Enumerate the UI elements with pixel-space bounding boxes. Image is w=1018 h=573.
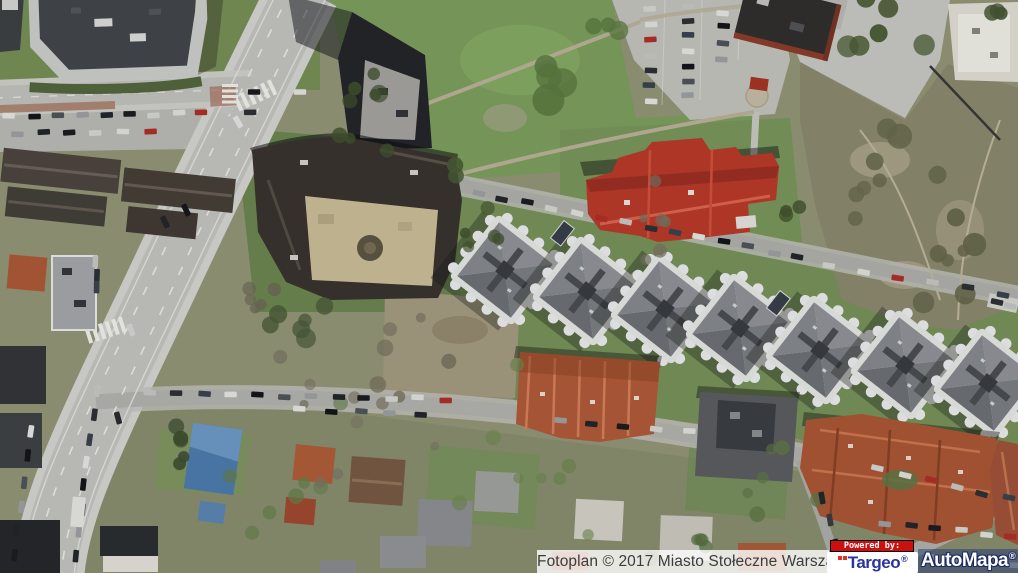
attribution-text: Fotoplan © 2017 Miasto Stołeczne Warszaw… [537, 553, 854, 570]
targeo-logo[interactable]: Targeo® [827, 552, 918, 573]
automapa-registered-mark: ® [1009, 552, 1015, 561]
automapa-logo[interactable]: AutoMapa® [918, 549, 1018, 573]
map-viewport[interactable]: Fotoplan © 2017 Miasto Stołeczne Warszaw… [0, 0, 1018, 573]
automapa-brand-text: AutoMapa [921, 550, 1008, 572]
powered-by-badge: Powered by: [830, 540, 914, 552]
photo-grain [0, 0, 1018, 573]
targeo-registered-mark: ® [901, 555, 907, 564]
map-attribution: Fotoplan © 2017 Miasto Stołeczne Warszaw… [537, 550, 829, 573]
targeo-brand-text: Targeo [848, 553, 900, 573]
targeo-dots-icon [838, 556, 847, 560]
aerial-map[interactable] [0, 0, 1018, 573]
